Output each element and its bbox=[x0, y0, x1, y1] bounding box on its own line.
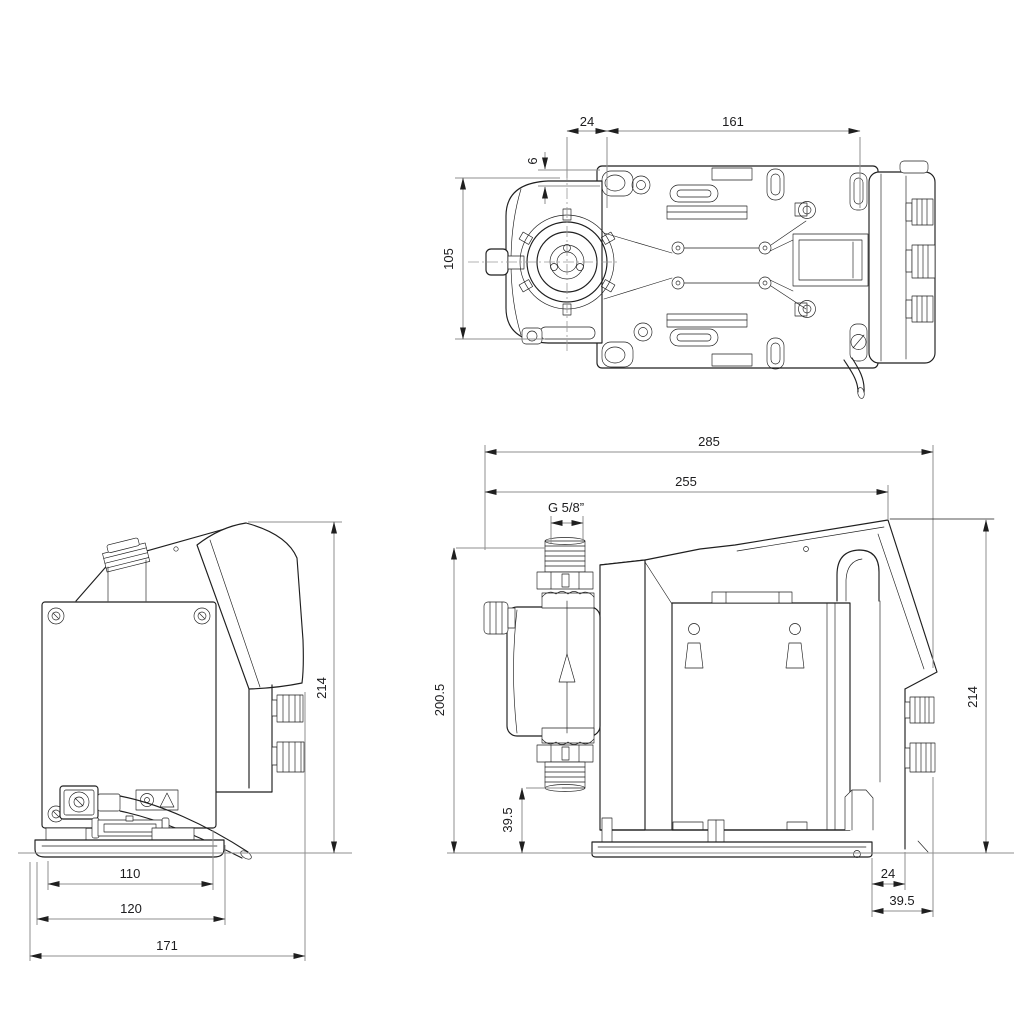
back-knob-2 bbox=[272, 742, 304, 772]
side-knob-2 bbox=[905, 743, 935, 772]
side-rear-foot bbox=[845, 790, 873, 830]
back-knob-1 bbox=[272, 695, 303, 722]
dim-label-side-39-5-bottom: 39.5 bbox=[889, 893, 914, 908]
dim-label-side-214: 214 bbox=[965, 686, 980, 708]
dim-label-side-255: 255 bbox=[675, 474, 697, 489]
dimensional-drawing: 24 161 6 105 bbox=[0, 0, 1024, 1024]
side-bottom-fitting bbox=[537, 728, 594, 792]
side-bracket bbox=[600, 560, 645, 830]
dim-label-side-39-5-left: 39.5 bbox=[500, 807, 515, 832]
dim-label-top-105: 105 bbox=[441, 248, 456, 270]
side-knob-1 bbox=[905, 697, 934, 723]
top-base-plate bbox=[597, 166, 878, 369]
top-dosing-head bbox=[468, 150, 618, 352]
dim-label-back-214: 214 bbox=[314, 677, 329, 699]
view-top: 24 161 6 105 bbox=[441, 114, 935, 399]
dim-label-side-285: 285 bbox=[698, 434, 720, 449]
top-knob-3 bbox=[906, 296, 933, 322]
dim-label-side-thread: G 5/8” bbox=[548, 500, 584, 515]
top-knob-1 bbox=[906, 199, 933, 225]
dim-label-back-171: 171 bbox=[156, 938, 178, 953]
dim-label-top-24: 24 bbox=[580, 114, 594, 129]
dim-label-back-110: 110 bbox=[120, 866, 141, 881]
dim-label-side-24: 24 bbox=[881, 866, 895, 881]
back-vent-plug bbox=[101, 536, 150, 572]
dim-label-side-200-5: 200.5 bbox=[432, 684, 447, 717]
side-top-fitting bbox=[537, 538, 594, 609]
dim-label-top-6: 6 bbox=[525, 157, 540, 164]
view-back: 214 110 120 171 bbox=[18, 522, 352, 961]
side-dosing-head bbox=[484, 538, 600, 792]
back-side-body bbox=[216, 685, 304, 792]
dim-label-top-161: 161 bbox=[722, 114, 744, 129]
view-side: 285 255 G 5/8” 200.5 39.5 214 bbox=[432, 434, 1014, 917]
dim-label-back-120: 120 bbox=[120, 901, 142, 916]
